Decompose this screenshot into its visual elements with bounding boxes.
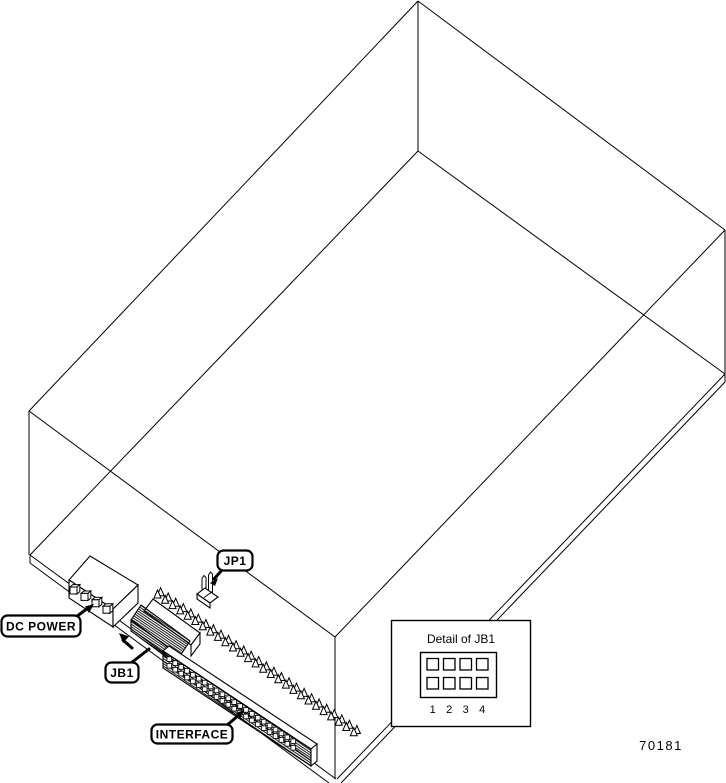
contact-cell bbox=[214, 688, 219, 693]
contact-cell bbox=[197, 683, 202, 688]
contact-cell bbox=[244, 708, 249, 713]
figure-page: Detail of JB1 1234 DC POWER JB1 JP1 bbox=[0, 0, 726, 783]
contact-cell bbox=[208, 684, 213, 689]
contact-cell bbox=[167, 663, 172, 668]
contact-cell bbox=[279, 731, 284, 736]
contact-cell bbox=[167, 657, 172, 662]
contact-cell bbox=[256, 722, 261, 727]
contact-cell bbox=[291, 739, 296, 744]
jumper-square bbox=[460, 659, 472, 671]
jumper-square bbox=[444, 659, 456, 671]
contact-cell bbox=[220, 699, 225, 704]
dc-pin-side bbox=[99, 597, 102, 606]
callout-label: JB1 bbox=[110, 666, 134, 680]
contact-cell bbox=[185, 675, 190, 680]
contact-cell bbox=[179, 665, 184, 670]
jumper-pin-number: 1 bbox=[430, 704, 436, 716]
dc-pin bbox=[103, 606, 110, 613]
contact-cell bbox=[185, 669, 190, 674]
contact-cell bbox=[261, 726, 266, 731]
contact-cell bbox=[261, 719, 266, 724]
callout-label: INTERFACE bbox=[156, 728, 229, 742]
contact-cell bbox=[173, 667, 178, 672]
contact-cell bbox=[256, 715, 261, 720]
contact-cell bbox=[232, 700, 237, 705]
contact-cell bbox=[267, 723, 272, 728]
contact-cell bbox=[179, 671, 184, 676]
dc-pin bbox=[70, 587, 77, 594]
jumper-square bbox=[477, 659, 489, 671]
jumper-square bbox=[460, 678, 472, 690]
dc-pin-side bbox=[77, 585, 80, 594]
dc-pin-side bbox=[88, 591, 91, 600]
contact-cell bbox=[226, 703, 231, 708]
inset-title: Detail of JB1 bbox=[427, 632, 495, 646]
contact-cell bbox=[191, 673, 196, 678]
contact-cell bbox=[208, 691, 213, 696]
contact-cell bbox=[250, 718, 255, 723]
contact-cell bbox=[191, 679, 196, 684]
contact-cell bbox=[202, 687, 207, 692]
jb1-detail-inset: Detail of JB1 1234 bbox=[392, 621, 531, 727]
contact-cell bbox=[173, 661, 178, 666]
jumper-pin-number: 4 bbox=[479, 704, 485, 716]
contact-cell bbox=[238, 704, 243, 709]
contact-cell bbox=[202, 680, 207, 685]
contact-cell bbox=[273, 734, 278, 739]
contact-cell bbox=[285, 742, 290, 747]
contact-cell bbox=[226, 696, 231, 701]
callout-label: DC POWER bbox=[6, 620, 76, 634]
figure-part-number: 70181 bbox=[639, 738, 683, 753]
contact-cell bbox=[273, 727, 278, 732]
jumper-square bbox=[477, 678, 489, 690]
contact-cell bbox=[285, 735, 290, 740]
contact-cell bbox=[220, 692, 225, 697]
dc-pin-side bbox=[110, 604, 113, 613]
callout-label: JP1 bbox=[224, 554, 247, 568]
contact-cell bbox=[250, 712, 255, 717]
jumper-pin-number: 3 bbox=[463, 704, 469, 716]
jumper-square bbox=[427, 659, 439, 671]
contact-cell bbox=[267, 730, 272, 735]
contact-cell bbox=[214, 695, 219, 700]
jumper-square bbox=[427, 678, 439, 690]
dc-pin bbox=[92, 600, 99, 607]
contact-cell bbox=[197, 676, 202, 681]
contact-cell bbox=[244, 714, 249, 719]
contact-cell bbox=[232, 706, 237, 711]
contact-cell bbox=[291, 746, 296, 751]
jumper-pin-number: 2 bbox=[446, 704, 452, 716]
dc-pin bbox=[81, 593, 88, 600]
jumper-square bbox=[444, 678, 456, 690]
contact-cell bbox=[279, 738, 284, 743]
technical-diagram: Detail of JB1 1234 DC POWER JB1 JP1 bbox=[0, 0, 726, 783]
